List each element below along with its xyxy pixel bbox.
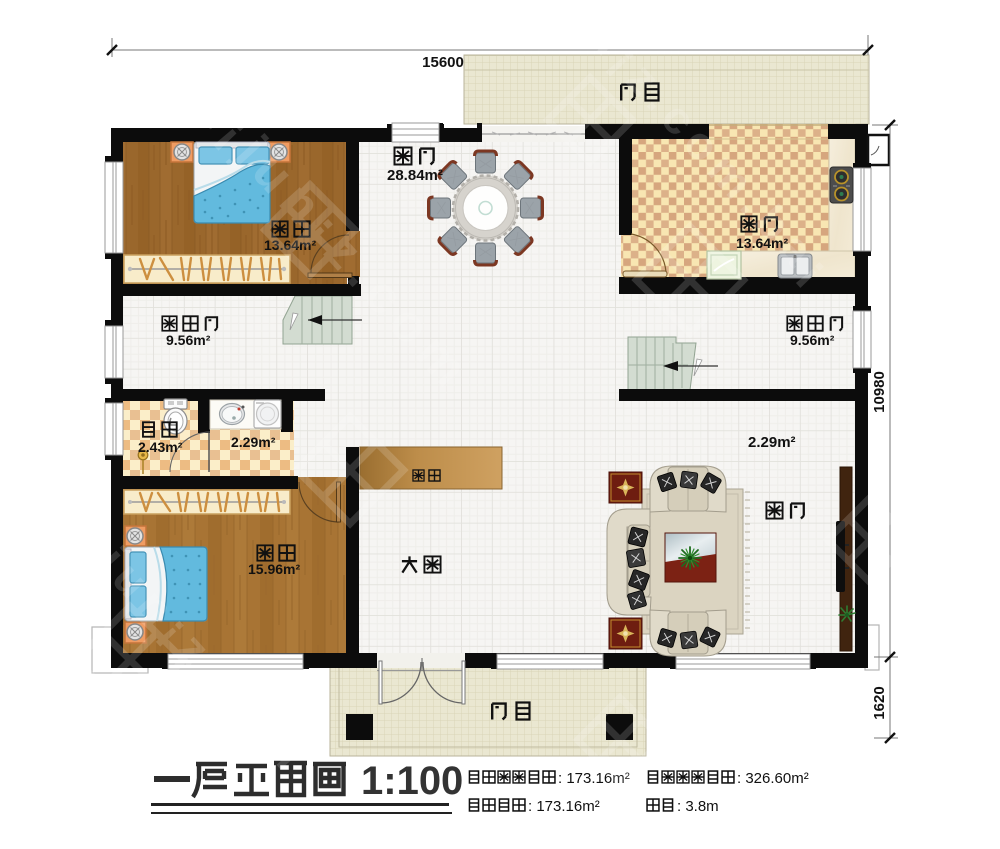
svg-text:13.64m²: 13.64m² [736, 235, 788, 251]
svg-text:10980: 10980 [871, 371, 888, 413]
svg-text:1:100: 1:100 [361, 759, 463, 803]
svg-text:: 173.16m²: : 173.16m² [558, 770, 630, 787]
svg-text:2.43m²: 2.43m² [138, 439, 183, 455]
svg-text:9.56m²: 9.56m² [790, 332, 835, 348]
svg-text:13.64m²: 13.64m² [264, 237, 316, 253]
svg-text:28.84m²: 28.84m² [387, 167, 443, 184]
svg-text:: 173.16m²: : 173.16m² [528, 798, 600, 815]
svg-text:: 326.60m²: : 326.60m² [737, 770, 809, 787]
svg-text:2.29m²: 2.29m² [231, 434, 276, 450]
svg-text:2.29m²: 2.29m² [748, 434, 796, 451]
svg-text:15.96m²: 15.96m² [248, 561, 300, 577]
svg-text:9.56m²: 9.56m² [166, 332, 211, 348]
svg-text:: 3.8m: : 3.8m [677, 798, 719, 815]
svg-text:1620: 1620 [871, 686, 888, 719]
svg-text:15600: 15600 [422, 54, 464, 71]
